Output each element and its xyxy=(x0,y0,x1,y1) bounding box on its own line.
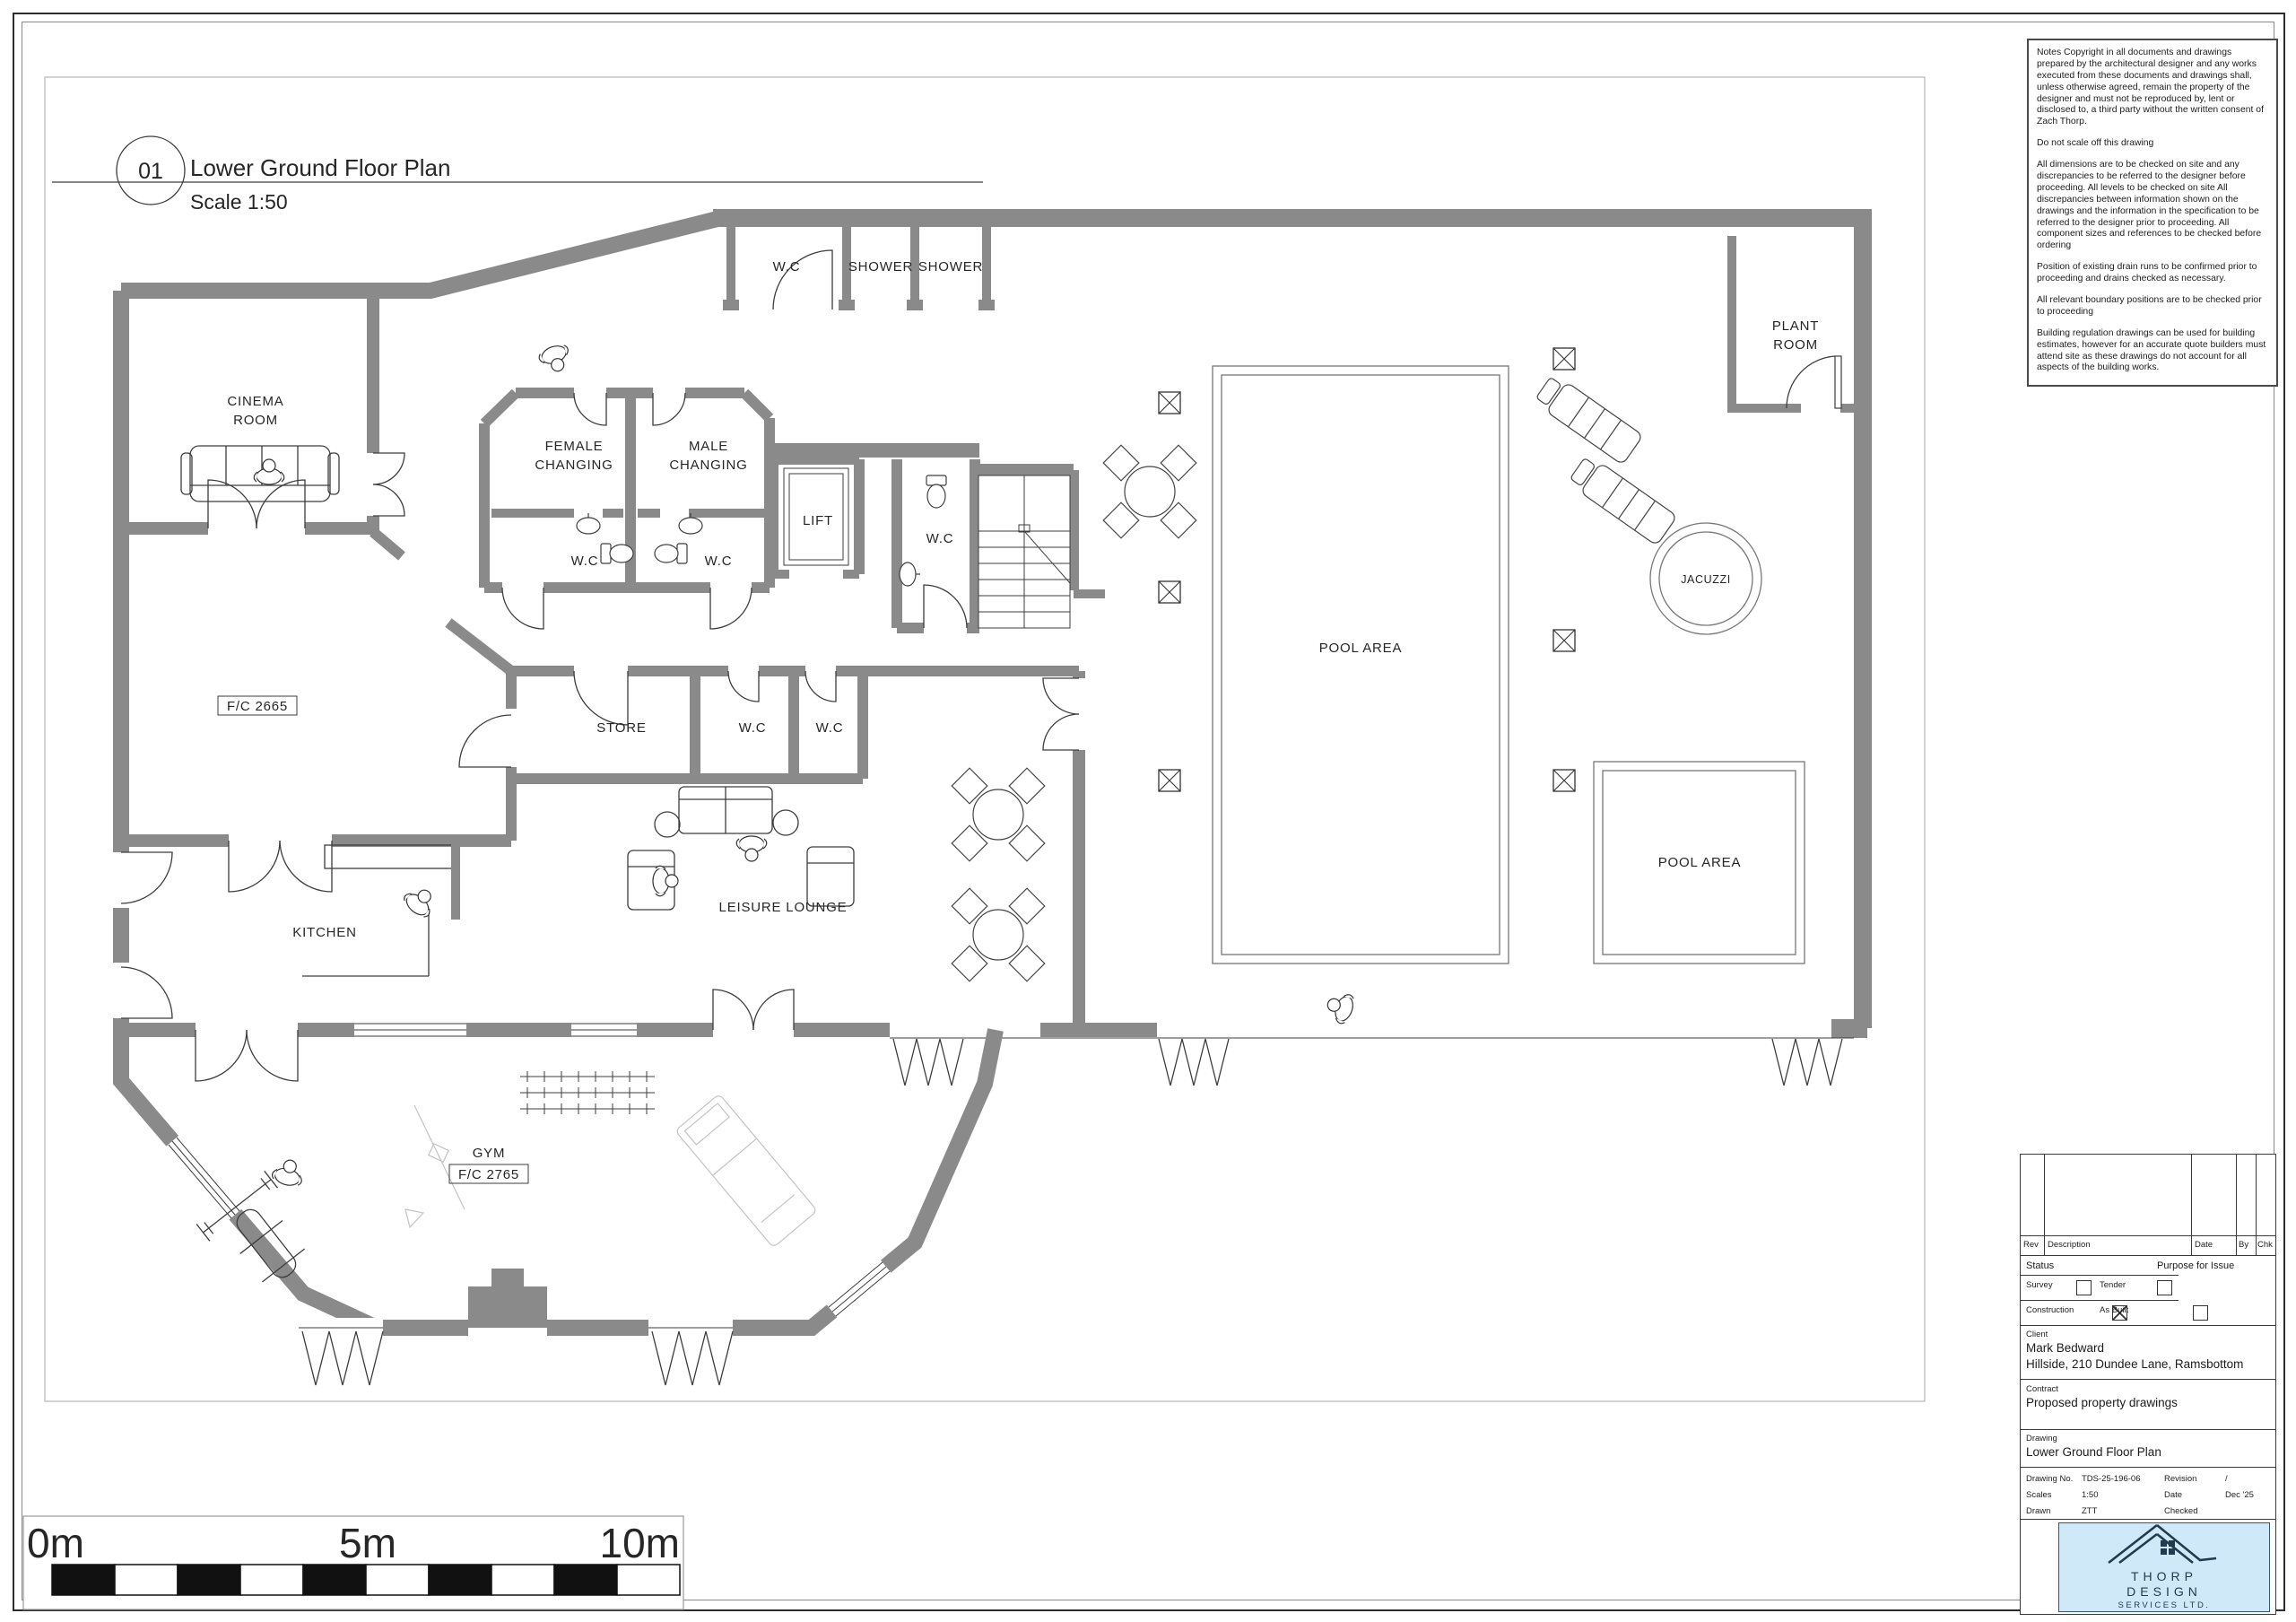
label-male: MALE xyxy=(689,439,728,454)
label-wc-top: W.C xyxy=(773,259,801,275)
chk-header: Chk xyxy=(2257,1240,2273,1250)
drawing-value: Lower Ground Floor Plan xyxy=(2026,1445,2161,1459)
label-store: STORE xyxy=(596,720,646,736)
label-pool-area: POOL AREA xyxy=(1319,641,1403,656)
detail-scale: Scale 1:50 xyxy=(190,190,288,214)
company-logo: THORP DESIGN SERVICES LTD. xyxy=(2058,1522,2270,1612)
label-fc-2765: F/C 2765 xyxy=(458,1167,519,1182)
note-drains: Position of existing drain runs to be co… xyxy=(2037,262,2268,285)
checked-label: Checked xyxy=(2164,1506,2198,1516)
drawn-value: ZTT xyxy=(2082,1506,2097,1516)
drawing-label: Drawing xyxy=(2026,1434,2057,1443)
status-survey-checkbox[interactable] xyxy=(2076,1280,2092,1295)
status-asbuilt-checkbox[interactable] xyxy=(2193,1305,2208,1321)
status-label: Status xyxy=(2026,1260,2054,1271)
description-header: Description xyxy=(2048,1240,2091,1250)
label-lift: LIFT xyxy=(803,513,833,528)
label-wc-lift: W.C xyxy=(926,531,954,546)
label-shower2: SHOWER xyxy=(918,259,983,275)
date-value: Dec '25 xyxy=(2225,1490,2254,1500)
date-label: Date xyxy=(2164,1490,2182,1500)
drawing-no-value: TDS-25-196-06 xyxy=(2082,1474,2140,1484)
label-kitchen: KITCHEN xyxy=(292,925,356,940)
kitchen-units xyxy=(302,843,460,976)
walls xyxy=(121,218,1872,1338)
detail-number: 01 xyxy=(138,159,163,184)
label-wc-male: W.C xyxy=(705,554,733,569)
gym-rower xyxy=(405,1105,465,1227)
drawing-sheet: 01 Lower Ground Floor Plan Scale 1:50 xyxy=(0,0,2296,1622)
status-asbuilt-label: As Built xyxy=(2100,1305,2128,1315)
logo-line2: DESIGN xyxy=(2059,1584,2269,1599)
note-boundaries: All relevant boundary positions are to b… xyxy=(2037,295,2268,318)
label-jacuzzi: JACUZZI xyxy=(1681,573,1731,586)
label-wc-store1: W.C xyxy=(739,720,767,736)
status-section: Status Purpose for Issue Survey Tender C… xyxy=(2021,1155,2275,1170)
status-construction-label: Construction xyxy=(2026,1305,2074,1315)
note-dimensions: All dimensions are to be checked on site… xyxy=(2037,160,2268,252)
status-tender-checkbox[interactable] xyxy=(2157,1280,2172,1295)
furniture xyxy=(181,342,1677,1300)
purpose-label: Purpose for Issue xyxy=(2157,1260,2234,1271)
label-gym: GYM xyxy=(473,1146,506,1161)
drawing-no-label: Drawing No. xyxy=(2026,1474,2073,1484)
label-wc-female: W.C xyxy=(571,554,599,569)
folding-door-symbols xyxy=(302,1039,1842,1385)
label-shower1: SHOWER xyxy=(848,259,913,275)
rev-header: Rev xyxy=(2023,1240,2039,1250)
client-address: Hillside, 210 Dundee Lane, Ramsbottom xyxy=(2026,1357,2243,1371)
label-plant: PLANT xyxy=(1772,318,1819,334)
label-wc-store2: W.C xyxy=(816,720,844,736)
notes-panel: Notes Copyright in all documents and dra… xyxy=(2027,39,2278,387)
label-leisure-lounge: LEISURE LOUNGE xyxy=(719,900,848,915)
scale-0m: 0m xyxy=(27,1520,84,1566)
title-block: Rev Description Date By Chk Status Purpo… xyxy=(2020,1154,2276,1615)
label-plant2: ROOM xyxy=(1773,337,1818,353)
status-survey-label: Survey xyxy=(2026,1280,2053,1290)
client-name: Mark Bedward xyxy=(2026,1341,2104,1355)
scale-10m: 10m xyxy=(600,1520,680,1566)
staircase xyxy=(978,475,1070,628)
note-building-regs: Building regulation drawings can be used… xyxy=(2037,328,2268,375)
label-cinema: CINEMA xyxy=(227,394,283,409)
note-copyright: Notes Copyright in all documents and dra… xyxy=(2037,48,2268,128)
date-header: Date xyxy=(2195,1240,2213,1250)
drawn-label: Drawn xyxy=(2026,1506,2050,1516)
scale-bar: 0m 5m 10m xyxy=(23,1516,683,1609)
contract-value: Proposed property drawings xyxy=(2026,1396,2178,1409)
revision-label: Revision xyxy=(2164,1474,2196,1484)
label-fc-2665: F/C 2665 xyxy=(227,699,288,714)
pools xyxy=(1213,366,1805,964)
note-no-scale: Do not scale off this drawing xyxy=(2037,138,2268,150)
by-header: By xyxy=(2239,1240,2248,1250)
label-cinema2: ROOM xyxy=(233,413,278,428)
logo-line1: THORP xyxy=(2059,1569,2269,1583)
scale-5m: 5m xyxy=(339,1520,396,1566)
client-label: Client xyxy=(2026,1330,2048,1339)
plan-title: 01 Lower Ground Floor Plan Scale 1:50 xyxy=(52,136,983,214)
scales-value: 1:50 xyxy=(2082,1490,2099,1500)
gym-dumbbell-rack xyxy=(520,1071,655,1114)
label-male2: CHANGING xyxy=(669,458,747,473)
label-pool-area2: POOL AREA xyxy=(1658,855,1742,870)
detail-title: Lower Ground Floor Plan xyxy=(190,154,450,181)
contract-label: Contract xyxy=(2026,1384,2058,1394)
logo-line3: SERVICES LTD. xyxy=(2059,1600,2269,1610)
label-female: FEMALE xyxy=(545,439,604,454)
floor-plan: 01 Lower Ground Floor Plan Scale 1:50 xyxy=(0,0,2296,1622)
status-tender-label: Tender xyxy=(2100,1280,2126,1290)
scales-label: Scales xyxy=(2026,1490,2052,1500)
gym-treadmill xyxy=(675,1094,817,1247)
label-female2: CHANGING xyxy=(535,458,613,473)
roof-icon xyxy=(2097,1523,2231,1565)
revision-value: / xyxy=(2225,1474,2228,1484)
